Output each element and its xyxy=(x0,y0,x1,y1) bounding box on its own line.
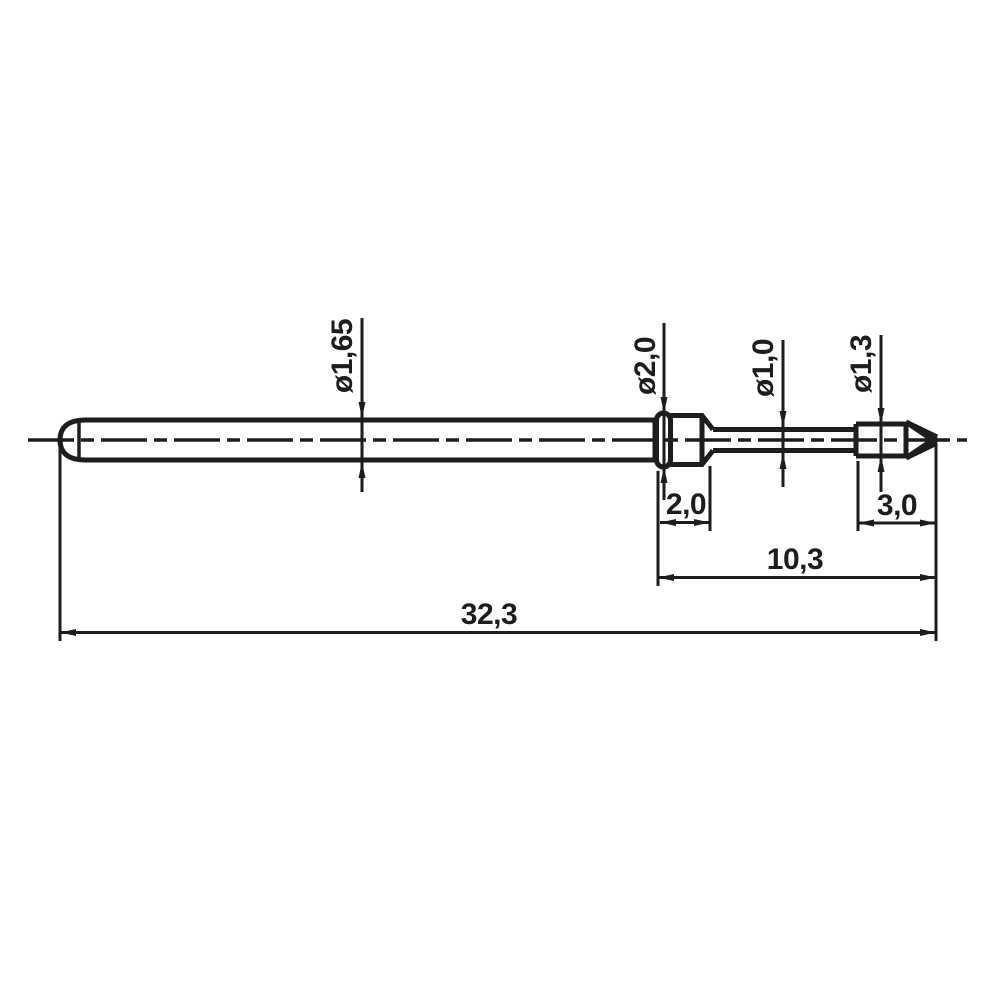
total-length-label: 32,3 xyxy=(461,598,517,631)
centerline-group xyxy=(28,421,967,459)
dimension-plunger-section-length: 10,3 xyxy=(658,543,936,581)
collar-diameter-label: ø2,0 xyxy=(629,337,662,395)
arrowhead-up xyxy=(359,462,366,478)
arrowhead-down xyxy=(780,411,787,427)
dimension-barrel-diameter: ø1,65 xyxy=(326,318,366,492)
plunger-section-length-label: 10,3 xyxy=(767,543,823,576)
plunger-diameter-label: ø1,0 xyxy=(747,339,780,397)
arrowhead-up xyxy=(780,453,787,469)
arrowhead-down xyxy=(359,402,366,418)
dimension-collar-length: 2,0 xyxy=(660,488,710,526)
arrowhead-left xyxy=(858,520,874,527)
dimension-total-length: 32,3 xyxy=(60,598,936,636)
arrowhead-left xyxy=(60,629,76,636)
dimension-tip-length: 3,0 xyxy=(858,489,936,527)
barrel-diameter-label: ø1,65 xyxy=(326,319,359,393)
dimension-tip-diameter: ø1,3 xyxy=(845,335,885,492)
arrowhead-up xyxy=(661,467,668,483)
collar-length-label: 2,0 xyxy=(666,488,706,521)
tip-diameter-label: ø1,3 xyxy=(845,335,878,393)
dimension-plunger-diameter: ø1,0 xyxy=(747,339,787,487)
tip-length-label: 3,0 xyxy=(877,489,917,522)
arrowhead-down xyxy=(661,397,668,413)
arrowhead-right xyxy=(920,629,936,636)
arrowhead-right xyxy=(920,574,936,581)
probe-technical-drawing: ø1,65 ø2,0 ø1,0 ø1,3 2,0 3,0 10,3 xyxy=(0,0,1000,1000)
arrowhead-left xyxy=(658,574,674,581)
arrowhead-right xyxy=(920,520,936,527)
